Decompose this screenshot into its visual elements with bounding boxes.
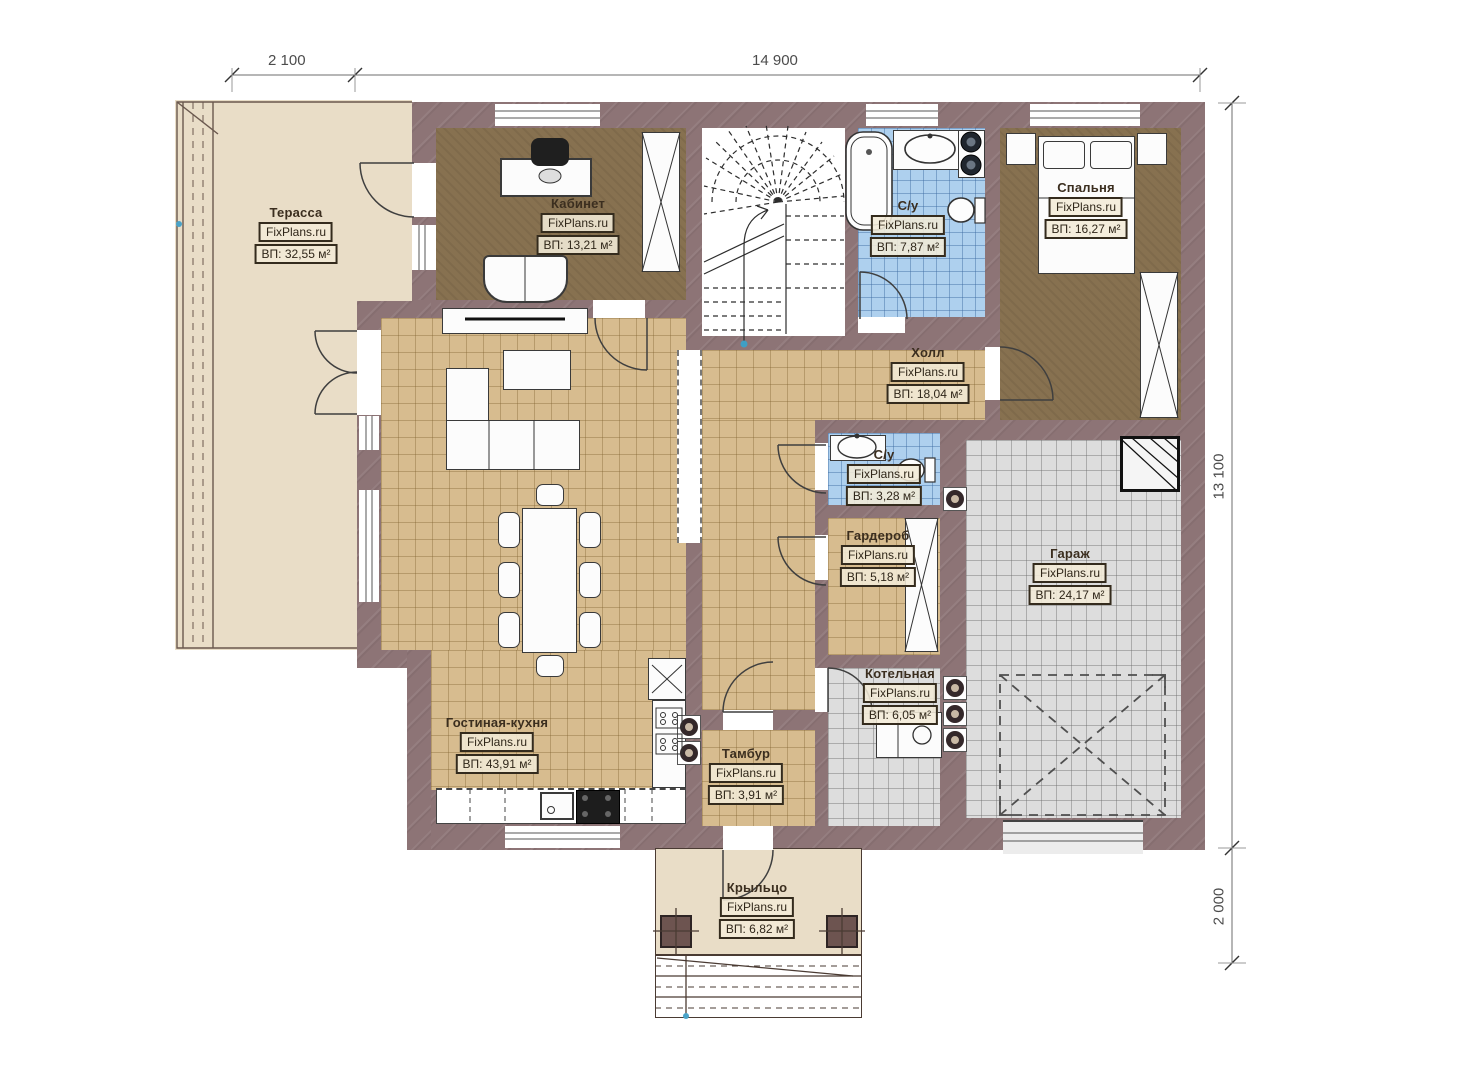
room-label-bathroom-2: С/у FixPlans.ru ВП: 3,28 м² xyxy=(846,447,922,506)
area-box: ВП: 18,04 м² xyxy=(887,384,970,404)
pillow xyxy=(1043,141,1085,169)
room-label-office: Кабинет FixPlans.ru ВП: 13,21 м² xyxy=(537,196,620,255)
door-gap-boiler xyxy=(815,668,828,712)
dining-chair xyxy=(536,484,564,506)
door-gap-vestibule xyxy=(723,710,773,730)
vent-ring-icon xyxy=(680,718,698,736)
brand-box: FixPlans.ru xyxy=(871,215,945,235)
room-label-bedroom: Спальня FixPlans.ru ВП: 16,27 м² xyxy=(1045,180,1128,239)
door-gap-wardrobe xyxy=(815,535,828,580)
area-box: ВП: 3,28 м² xyxy=(846,486,922,506)
room-label-bathroom-1: С/у FixPlans.ru ВП: 7,87 м² xyxy=(870,198,946,257)
vent-ring-icon xyxy=(946,490,964,508)
wall-left-lower xyxy=(407,650,431,850)
room-name: Холл xyxy=(887,345,970,360)
brand-box: FixPlans.ru xyxy=(891,362,965,382)
porch-steps xyxy=(655,955,862,1018)
door-gap-entrance xyxy=(723,826,773,850)
brand-box: FixPlans.ru xyxy=(720,897,794,917)
dining-chair xyxy=(498,512,520,548)
dining-chair xyxy=(579,512,601,548)
vent-ring-icon xyxy=(946,679,964,697)
area-box: ВП: 24,17 м² xyxy=(1029,585,1112,605)
terrace-floor xyxy=(175,100,412,301)
room-name: Гостиная-кухня xyxy=(446,715,548,730)
room-name: Спальня xyxy=(1045,180,1128,195)
office-wardrobe xyxy=(642,132,680,272)
dining-chair xyxy=(536,655,564,677)
dimension-right-bottom: 2 000 xyxy=(1210,888,1227,926)
door-gap-bedroom xyxy=(985,347,1000,400)
vent-ring-icon xyxy=(946,705,964,723)
bath1-washer-box xyxy=(958,130,985,178)
room-label-terrace: Терасса FixPlans.ru ВП: 32,55 м² xyxy=(255,205,338,264)
office-sofa xyxy=(483,255,568,303)
brand-box: FixPlans.ru xyxy=(1033,563,1107,583)
brand-box: FixPlans.ru xyxy=(1049,197,1123,217)
vent-ring-icon xyxy=(680,744,698,762)
brand-box: FixPlans.ru xyxy=(709,763,783,783)
room-name: Тамбур xyxy=(708,746,784,761)
room-name: Кабинет xyxy=(537,196,620,211)
tv-stand xyxy=(442,308,588,334)
window-bedroom-top xyxy=(1030,104,1140,126)
porch-post-left xyxy=(660,915,692,948)
room-label-hall: Холл FixPlans.ru ВП: 18,04 м² xyxy=(887,345,970,404)
dining-chair xyxy=(579,612,601,648)
door-gap-bathroom2 xyxy=(815,443,828,490)
window-bathroom1-top xyxy=(866,104,938,126)
brand-box: FixPlans.ru xyxy=(841,545,915,565)
room-name: С/у xyxy=(870,198,946,213)
garage-sectional-door xyxy=(1003,820,1143,854)
brand-box: FixPlans.ru xyxy=(541,213,615,233)
room-name: Терасса xyxy=(255,205,338,220)
window-kitchen-bottom xyxy=(505,826,620,848)
door-gap-bathroom1 xyxy=(858,317,905,333)
room-name: Котельная xyxy=(862,666,938,681)
room-label-porch: Крыльцо FixPlans.ru ВП: 6,82 м² xyxy=(719,880,795,939)
coffee-table xyxy=(503,350,571,390)
office-chair xyxy=(531,138,569,166)
hall-corridor-floor xyxy=(702,420,815,710)
nightstand-left xyxy=(1006,133,1036,165)
vent-ring-icon xyxy=(946,731,964,749)
pillow xyxy=(1090,141,1132,169)
floor-plan: 2 100 14 900 13 100 2 000 Терасса FixPla… xyxy=(0,0,1473,1080)
sofa-seat xyxy=(446,420,580,470)
area-box: ВП: 6,82 м² xyxy=(719,919,795,939)
bedroom-wardrobe xyxy=(1140,272,1178,418)
nightstand-right xyxy=(1137,133,1167,165)
dining-chair xyxy=(498,562,520,598)
room-label-garage: Гараж FixPlans.ru ВП: 24,17 м² xyxy=(1029,546,1112,605)
garage-equipment-box xyxy=(1120,436,1180,492)
room-label-wardrobe: Гардероб FixPlans.ru ВП: 5,18 м² xyxy=(840,528,916,587)
room-name: Гараж xyxy=(1029,546,1112,561)
room-name: Гардероб xyxy=(840,528,916,543)
terrace-floor-lower xyxy=(175,300,357,650)
area-box: ВП: 5,18 м² xyxy=(840,567,916,587)
fridge xyxy=(648,658,686,700)
dimension-right-main: 13 100 xyxy=(1210,454,1227,500)
living-hall-opening xyxy=(677,350,702,543)
brand-box: FixPlans.ru xyxy=(259,222,333,242)
door-gap-terrace xyxy=(357,330,381,415)
room-name: Крыльцо xyxy=(719,880,795,895)
dining-chair xyxy=(498,612,520,648)
kitchen-stove xyxy=(576,790,620,824)
area-box: ВП: 7,87 м² xyxy=(870,237,946,257)
window-living-left-small xyxy=(359,416,379,450)
room-name: С/у xyxy=(846,447,922,462)
dining-table xyxy=(522,508,577,653)
staircase-floor xyxy=(702,128,845,336)
area-box: ВП: 43,91 м² xyxy=(456,754,539,774)
brand-box: FixPlans.ru xyxy=(847,464,921,484)
window-office-top xyxy=(495,104,600,126)
area-box: ВП: 3,91 м² xyxy=(708,785,784,805)
brand-box: FixPlans.ru xyxy=(460,732,534,752)
porch-post-right xyxy=(826,915,858,948)
room-label-boiler: Котельная FixPlans.ru ВП: 6,05 м² xyxy=(862,666,938,725)
area-box: ВП: 13,21 м² xyxy=(537,235,620,255)
door-gap-office-terrace xyxy=(412,163,436,217)
area-box: ВП: 16,27 м² xyxy=(1045,219,1128,239)
area-box: ВП: 6,05 м² xyxy=(862,705,938,725)
window-living-left-large xyxy=(359,490,379,602)
kitchen-sink xyxy=(540,792,574,820)
room-label-vestibule: Тамбур FixPlans.ru ВП: 3,91 м² xyxy=(708,746,784,805)
garage-floor xyxy=(966,440,1181,818)
dimension-top-main: 14 900 xyxy=(752,52,798,69)
room-label-living-kitchen: Гостиная-кухня FixPlans.ru ВП: 43,91 м² xyxy=(446,715,548,774)
door-gap-office xyxy=(593,300,645,318)
window-office-terrace xyxy=(412,225,436,270)
dimension-top-left: 2 100 xyxy=(268,52,306,69)
area-box: ВП: 32,55 м² xyxy=(255,244,338,264)
dining-chair xyxy=(579,562,601,598)
brand-box: FixPlans.ru xyxy=(863,683,937,703)
